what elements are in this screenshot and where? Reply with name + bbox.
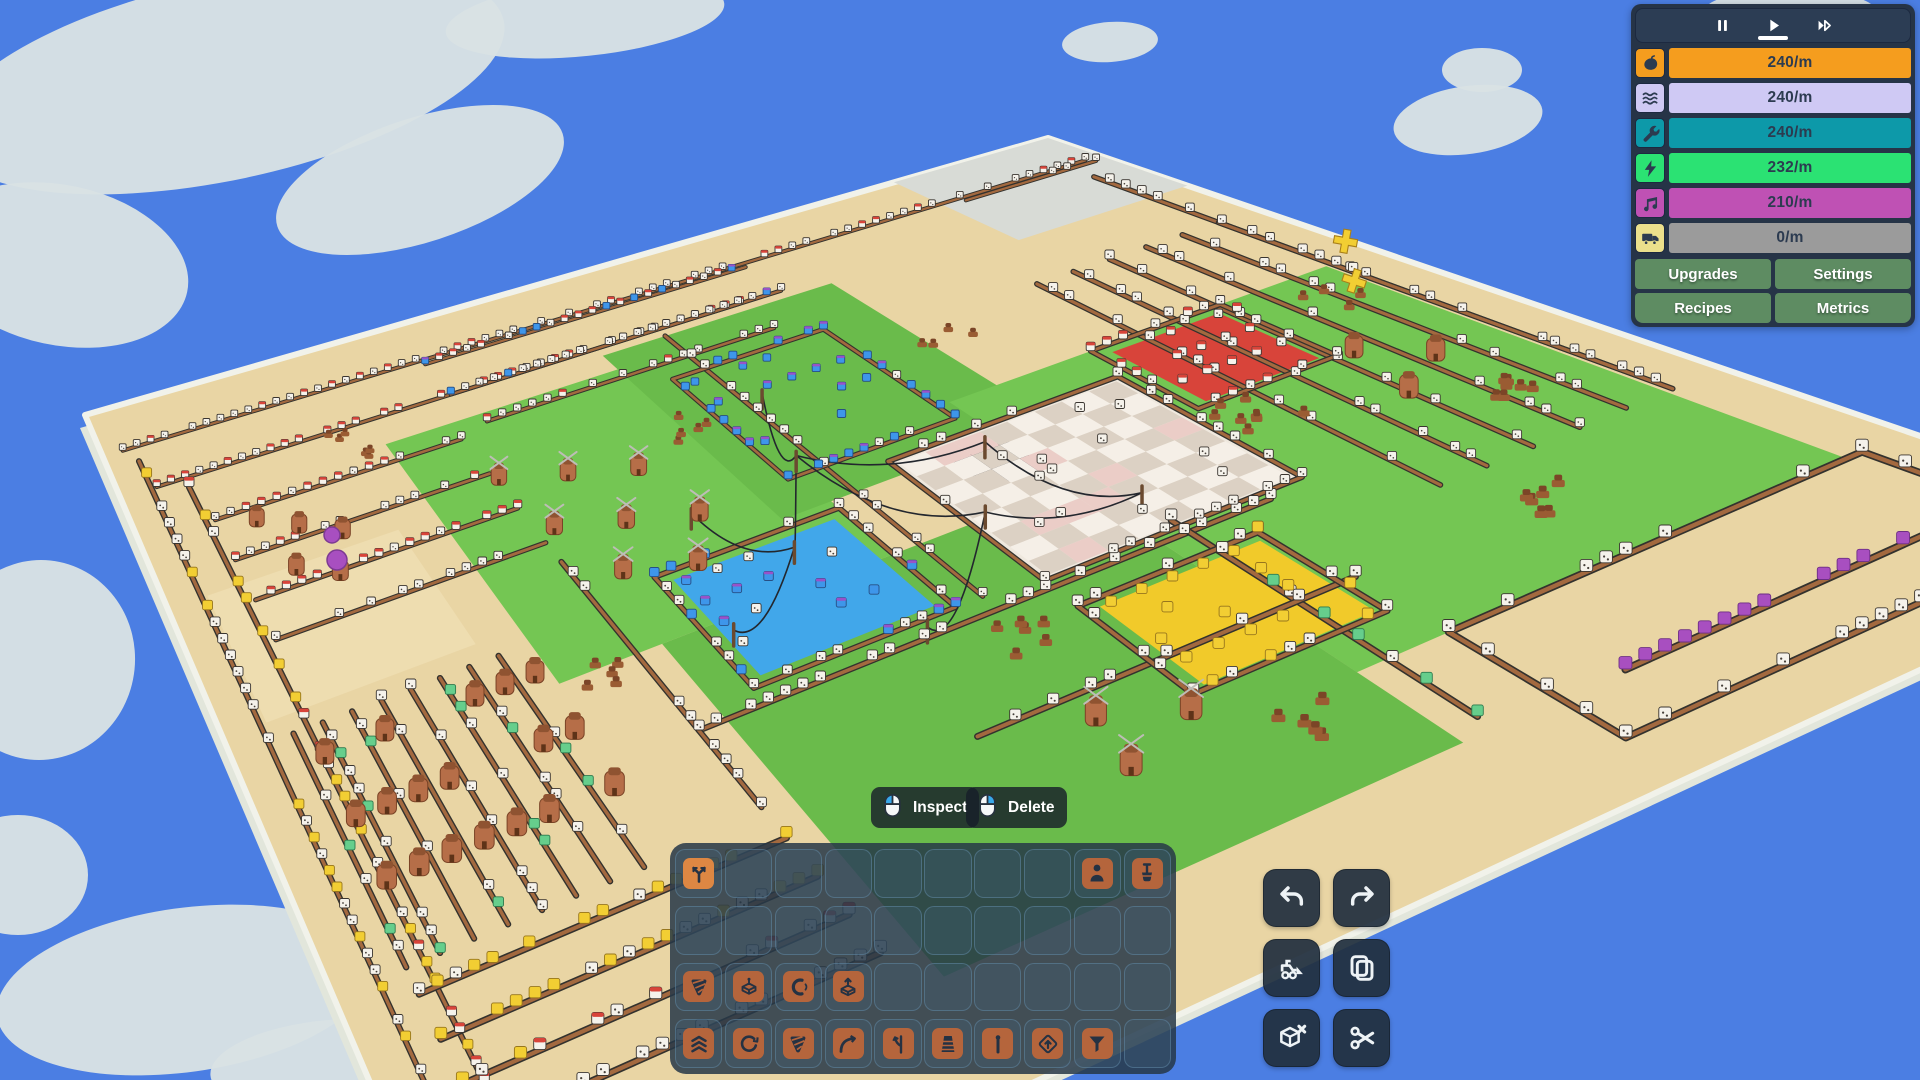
copy-icon (1346, 952, 1378, 984)
selected-speed-indicator (1758, 36, 1788, 40)
resource-row-energy: 232/m (1635, 153, 1911, 183)
build-slot-empty[interactable] (1024, 906, 1071, 955)
resource-rates: 240/m240/m240/m232/m210/m0/m (1635, 48, 1911, 253)
boost-sign-icon (1032, 1028, 1063, 1059)
rotate-tool-icon (737, 1032, 761, 1056)
build-slot-magnet[interactable] (775, 963, 822, 1012)
build-slot-splitter[interactable] (675, 849, 722, 898)
speed-chevrons-icon (683, 1028, 714, 1059)
shovel-icon (1132, 858, 1163, 889)
crate-export-icon (833, 971, 864, 1002)
post-icon (986, 1032, 1010, 1056)
curve-path-icon (833, 1028, 864, 1059)
build-slot-empty[interactable] (725, 849, 772, 898)
delete-hint: Delete (966, 787, 1067, 828)
undo-icon (1276, 882, 1308, 914)
build-slot-crate-export[interactable] (825, 963, 872, 1012)
build-slot-rotate-tool[interactable] (725, 1019, 772, 1068)
resource-rate-bar: 232/m (1669, 153, 1911, 183)
speed-controls (1635, 8, 1911, 43)
redo-button[interactable] (1333, 869, 1390, 927)
upgrades-button[interactable]: Upgrades (1635, 259, 1771, 289)
filter-funnel-icon (1082, 1028, 1113, 1059)
build-slot-empty[interactable] (825, 906, 872, 955)
worker-icon (1085, 861, 1109, 885)
resource-rate-bar: 240/m (1669, 118, 1911, 148)
undo-button[interactable] (1263, 869, 1320, 927)
fast-forward-icon (1815, 16, 1834, 35)
build-slot-worker[interactable] (1074, 849, 1121, 898)
build-slot-drill-cone[interactable] (675, 963, 722, 1012)
pause-icon (1713, 16, 1732, 35)
truck-icon (1640, 228, 1661, 249)
resource-row-fruit: 240/m (1635, 48, 1911, 78)
lightning-icon (1640, 158, 1661, 179)
mouse-left-icon (879, 792, 906, 824)
play-icon (1764, 16, 1783, 35)
resource-rate-bar: 210/m (1669, 188, 1911, 218)
bulldozer-button[interactable] (1263, 939, 1320, 997)
magnet-icon (786, 975, 810, 999)
build-slot-crate-spinner[interactable] (725, 963, 772, 1012)
build-slot-empty[interactable] (924, 849, 971, 898)
build-toolbar (670, 843, 1176, 1074)
waves-icon (1635, 83, 1665, 113)
splitter-icon (687, 861, 711, 885)
resource-rate-bar: 240/m (1669, 83, 1911, 113)
fast-forward-button[interactable] (1812, 14, 1836, 38)
cut-button[interactable] (1333, 1009, 1390, 1067)
music-note-icon (1640, 193, 1661, 214)
drill-cone-icon (683, 971, 714, 1002)
resource-row-wrenches: 240/m (1635, 118, 1911, 148)
build-slot-empty[interactable] (874, 906, 921, 955)
bulldozer-icon (1276, 952, 1308, 984)
build-slot-empty[interactable] (874, 963, 921, 1012)
lane-split-icon (886, 1032, 910, 1056)
resource-row-deliveries: 0/m (1635, 223, 1911, 253)
kiln-icon (936, 1032, 960, 1056)
waves-icon (1640, 88, 1661, 109)
inspect-hint: Inspect (871, 787, 979, 828)
build-slot-empty[interactable] (675, 906, 722, 955)
mouse-right-icon (974, 792, 1001, 819)
shovel-icon (1135, 861, 1159, 885)
lightning-icon (1635, 153, 1665, 183)
speed-chevrons-icon (687, 1032, 711, 1056)
hud-panel: 240/m240/m240/m232/m210/m0/m UpgradesSet… (1631, 4, 1915, 327)
mango-icon (1640, 53, 1661, 74)
build-slot-empty[interactable] (775, 906, 822, 955)
splitter-icon (683, 858, 714, 889)
redo-icon (1346, 882, 1378, 914)
worker-icon (1082, 858, 1113, 889)
hint-label: Delete (1008, 799, 1055, 817)
build-slot-empty[interactable] (1074, 963, 1121, 1012)
build-slot-speed-chevrons[interactable] (675, 1019, 722, 1068)
build-slot-empty[interactable] (874, 849, 921, 898)
wrench-icon (1640, 123, 1661, 144)
build-slot-empty[interactable] (924, 963, 971, 1012)
menu-buttons: UpgradesSettingsRecipesMetrics (1635, 259, 1911, 323)
build-slot-empty[interactable] (924, 906, 971, 955)
boost-sign-icon (1036, 1032, 1060, 1056)
hint-label: Inspect (913, 799, 967, 817)
build-slot-cone-marker[interactable] (775, 1019, 822, 1068)
kiln-icon (932, 1028, 963, 1059)
resource-rate-bar: 240/m (1669, 48, 1911, 78)
build-slot-empty[interactable] (974, 963, 1021, 1012)
resource-rate-bar: 0/m (1669, 223, 1911, 253)
build-slot-empty[interactable] (1024, 963, 1071, 1012)
crate-spinner-icon (733, 971, 764, 1002)
crate-spinner-icon (737, 975, 761, 999)
edit-tools (1263, 869, 1390, 1067)
crate-export-icon (836, 975, 860, 999)
build-slot-kiln[interactable] (924, 1019, 971, 1068)
wrench-icon (1635, 118, 1665, 148)
build-slot-filter-funnel[interactable] (1074, 1019, 1121, 1068)
lane-split-icon (883, 1028, 914, 1059)
resource-row-water: 240/m (1635, 83, 1911, 113)
truck-icon (1635, 223, 1665, 253)
mango-icon (1635, 48, 1665, 78)
magnet-icon (783, 971, 814, 1002)
build-slot-boost-sign[interactable] (1024, 1019, 1071, 1068)
build-slot-empty[interactable] (825, 849, 872, 898)
build-slot-empty[interactable] (1124, 906, 1171, 955)
build-slot-empty[interactable] (725, 906, 772, 955)
build-slot-empty[interactable] (974, 906, 1021, 955)
settings-button[interactable]: Settings (1775, 259, 1911, 289)
mouse-left-icon (879, 792, 906, 819)
post-icon (982, 1028, 1013, 1059)
mouse-right-icon (974, 792, 1001, 824)
build-slot-empty[interactable] (1074, 906, 1121, 955)
metrics-button[interactable]: Metrics (1775, 293, 1911, 323)
build-slot-empty[interactable] (1124, 1019, 1171, 1068)
cut-icon (1346, 1022, 1378, 1054)
curve-path-icon (836, 1032, 860, 1056)
recipes-button[interactable]: Recipes (1635, 293, 1771, 323)
build-slot-empty[interactable] (974, 849, 1021, 898)
build-slot-empty[interactable] (775, 849, 822, 898)
pause-button[interactable] (1710, 14, 1734, 38)
copy-button[interactable] (1333, 939, 1390, 997)
cone-marker-icon (783, 1028, 814, 1059)
delete-object-icon (1276, 1022, 1308, 1054)
build-slot-empty[interactable] (1124, 963, 1171, 1012)
build-slot-post[interactable] (974, 1019, 1021, 1068)
rotate-tool-icon (733, 1028, 764, 1059)
filter-funnel-icon (1085, 1032, 1109, 1056)
build-slot-shovel[interactable] (1124, 849, 1171, 898)
resource-row-music: 210/m (1635, 188, 1911, 218)
build-slot-empty[interactable] (1024, 849, 1071, 898)
build-slot-lane-split[interactable] (874, 1019, 921, 1068)
music-note-icon (1635, 188, 1665, 218)
delete-object-button[interactable] (1263, 1009, 1320, 1067)
play-button[interactable] (1761, 14, 1785, 38)
drill-cone-icon (687, 975, 711, 999)
cone-marker-icon (786, 1032, 810, 1056)
build-slot-curve-path[interactable] (825, 1019, 872, 1068)
